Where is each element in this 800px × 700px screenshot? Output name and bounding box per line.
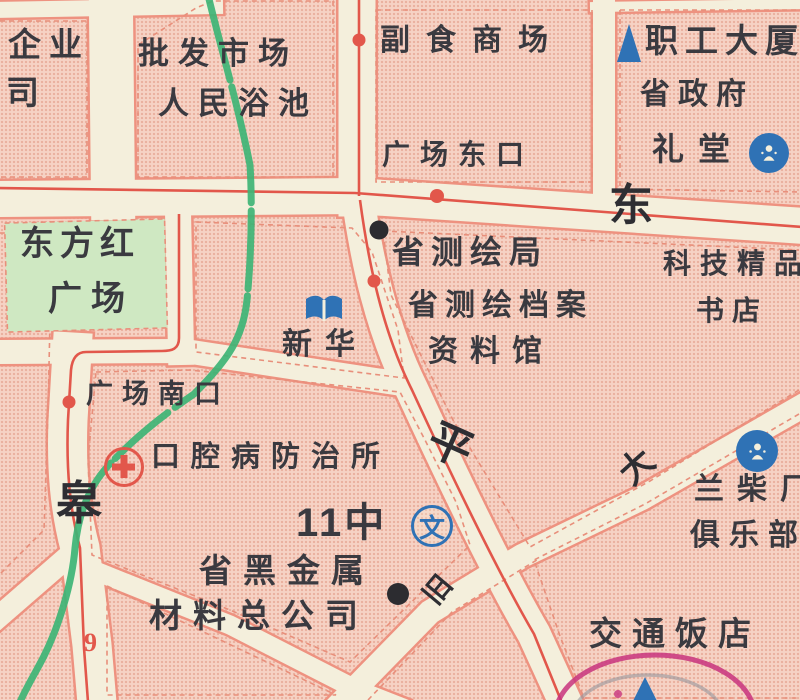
school-icon-glyph: 文 <box>419 508 445 545</box>
label-dongfanghong-square-line2: 广场 <box>48 282 134 316</box>
label-tech-bookstore-line2: 书店 <box>696 297 768 325</box>
theater-icon <box>736 430 778 472</box>
label-square-east-entrance: 广场东口 <box>382 141 534 169</box>
label-surveying-archives: 省测绘档案 <box>408 291 593 321</box>
label-archives-hall: 资料馆 <box>428 337 554 367</box>
cross-horizontal <box>112 464 135 471</box>
label-traffic-hotel: 交通饭店 <box>589 617 761 650</box>
label-ferrous-metals-line1: 省黑金属 <box>199 554 375 587</box>
label-no11-middle-school: 11中 <box>296 503 387 543</box>
label-lanchai-club-line2: 俱乐部 <box>690 521 800 551</box>
hand-drawn-marker <box>555 655 755 700</box>
label-xinhua-bookstore: 新华 <box>282 330 368 360</box>
label-surveying-bureau: 省测绘局 <box>392 236 548 268</box>
label-enterprise-line2: 司 <box>6 76 39 109</box>
label-enterprise-line1: 企业 <box>8 28 90 61</box>
label-workers-mansion: 职工大厦 <box>645 24 800 57</box>
label-dongfanghong-square-line1: 东方红 <box>20 227 140 261</box>
label-ferrous-metals-line2: 材料总公司 <box>149 599 369 632</box>
theater-figure <box>746 439 769 464</box>
label-provincial-government: 省政府 <box>640 80 754 110</box>
label-square-south-entrance: 广场南口 <box>86 381 230 408</box>
hospital-icon <box>104 447 144 487</box>
street-label-gao: 皋 <box>56 480 102 526</box>
theater-icon <box>749 133 789 173</box>
theater-figure <box>758 141 780 165</box>
label-lanchai-club-line1: 兰柴厂 <box>694 475 800 505</box>
label-wholesale-market: 批发市场 <box>138 38 298 69</box>
label-food-market: 副食商场 <box>380 26 564 56</box>
label-tech-bookstore-line1: 科技精品 <box>663 250 800 278</box>
street-label-east: 东 <box>609 184 653 228</box>
bus-route-number: 9 <box>84 630 97 656</box>
label-auditorium: 礼堂 <box>652 133 744 165</box>
school-icon: 文 <box>411 505 453 547</box>
city-map: 文 企业 司 批发市场 人民浴池 副食商场 广场东口 职工大厦 省政府 礼堂 东… <box>0 0 800 700</box>
label-peoples-bathhouse: 人民浴池 <box>158 88 318 119</box>
label-dental-clinic: 口腔病防治所 <box>151 443 391 472</box>
bookstore-icon <box>303 293 345 330</box>
open-book-glyph <box>303 293 345 325</box>
